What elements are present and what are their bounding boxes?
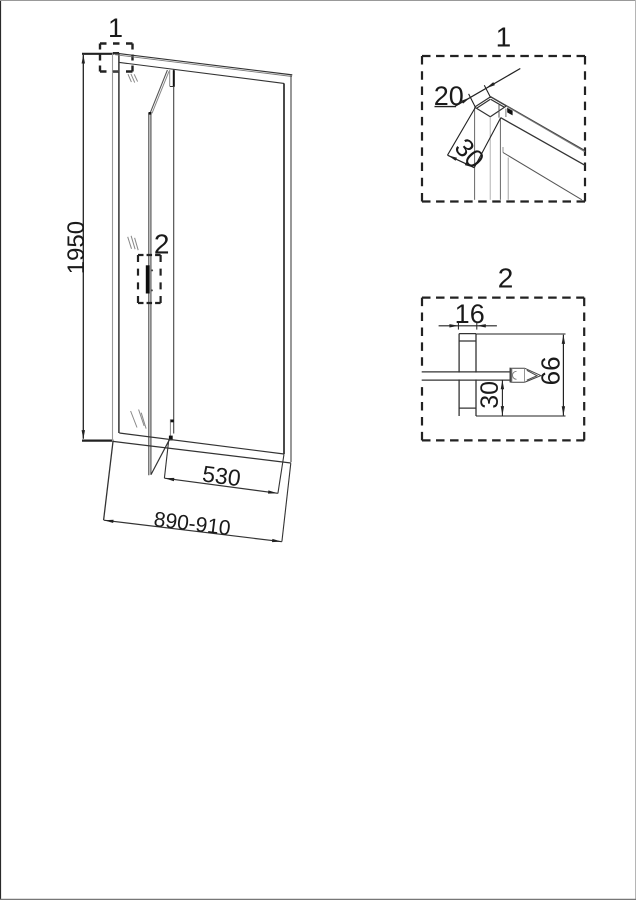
- svg-text:1: 1: [496, 22, 512, 53]
- svg-text:1: 1: [108, 13, 123, 43]
- svg-text:1950: 1950: [63, 221, 90, 274]
- svg-text:16: 16: [455, 299, 485, 329]
- svg-text:66: 66: [536, 356, 566, 385]
- svg-text:2: 2: [498, 263, 514, 294]
- svg-text:2: 2: [154, 228, 170, 259]
- svg-text:530: 530: [201, 460, 242, 491]
- svg-text:30: 30: [476, 381, 504, 409]
